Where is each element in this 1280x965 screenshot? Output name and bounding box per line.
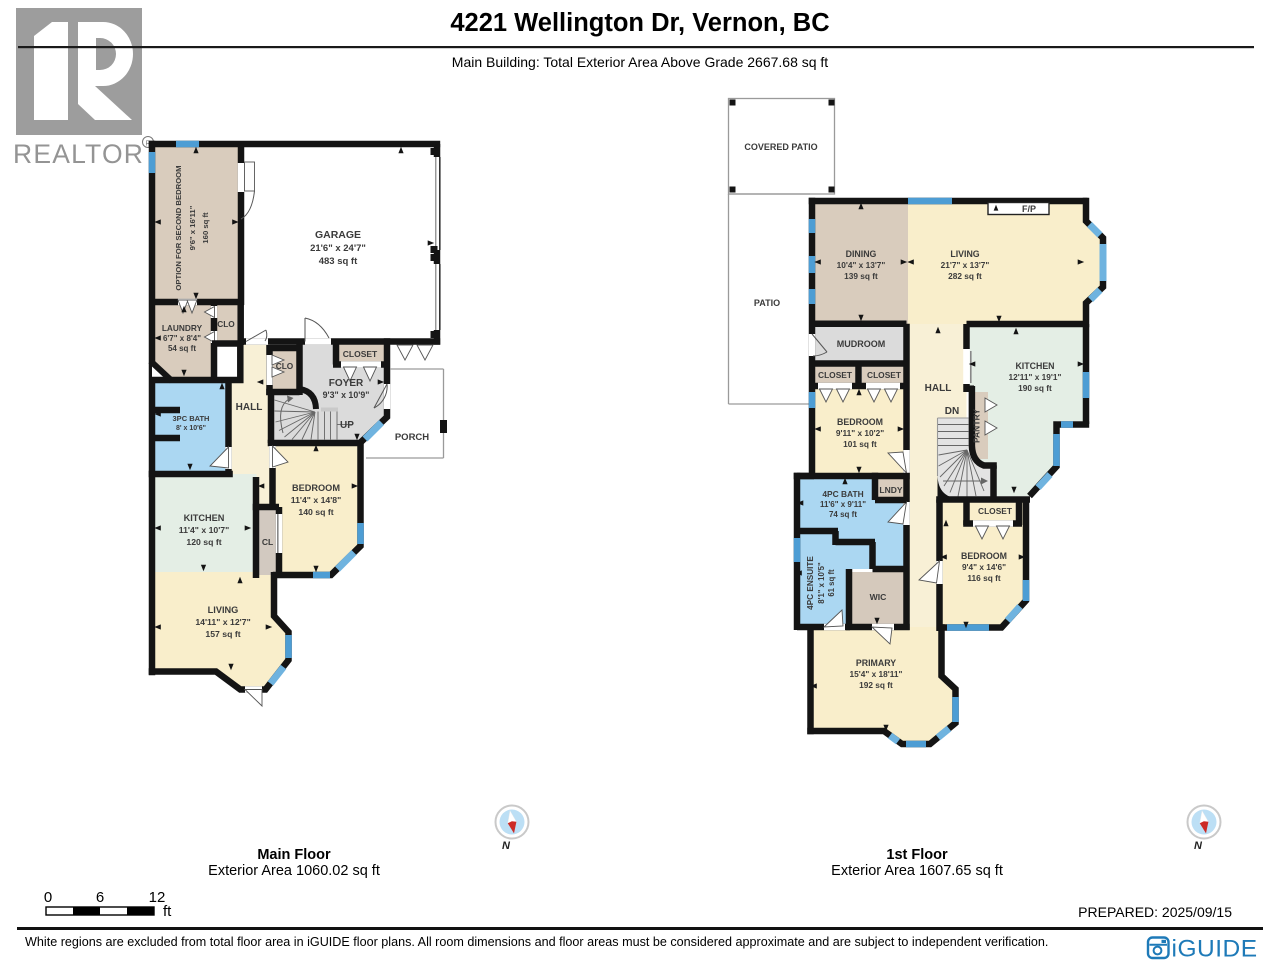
svg-text:LNDY: LNDY bbox=[879, 485, 902, 495]
svg-text:74 sq ft: 74 sq ft bbox=[829, 510, 857, 519]
svg-text:3PC BATH: 3PC BATH bbox=[173, 414, 210, 423]
svg-text:6'7" x 8'4": 6'7" x 8'4" bbox=[163, 334, 201, 343]
svg-text:iGUIDE: iGUIDE bbox=[1172, 936, 1258, 961]
svg-text:139 sq ft: 139 sq ft bbox=[844, 271, 878, 281]
svg-text:9'6" x 16'11": 9'6" x 16'11" bbox=[188, 205, 197, 250]
svg-text:9'3" x 10'9": 9'3" x 10'9" bbox=[323, 390, 370, 400]
svg-text:10'4" x 13'7": 10'4" x 13'7" bbox=[837, 260, 886, 270]
svg-text:0: 0 bbox=[44, 889, 52, 906]
svg-text:PREPARED: 2025/09/15: PREPARED: 2025/09/15 bbox=[1078, 904, 1232, 920]
svg-text:CLO: CLO bbox=[217, 319, 235, 329]
svg-text:6: 6 bbox=[96, 889, 104, 906]
svg-text:282 sq ft: 282 sq ft bbox=[948, 271, 982, 281]
svg-text:CLOSET: CLOSET bbox=[867, 370, 902, 380]
svg-text:HALL: HALL bbox=[925, 383, 952, 394]
svg-text:1st Floor: 1st Floor bbox=[886, 847, 948, 863]
svg-text:11'6" x 9'11": 11'6" x 9'11" bbox=[820, 500, 866, 509]
svg-text:Main Building: Total Exterior: Main Building: Total Exterior Area Above… bbox=[452, 54, 829, 70]
svg-text:21'7" x 13'7": 21'7" x 13'7" bbox=[941, 260, 990, 270]
svg-text:GARAGE: GARAGE bbox=[315, 229, 361, 241]
svg-text:WIC: WIC bbox=[870, 592, 887, 602]
svg-text:CLOSET: CLOSET bbox=[818, 370, 853, 380]
svg-text:OPTION FOR SECOND BEDROOM: OPTION FOR SECOND BEDROOM bbox=[174, 165, 183, 290]
svg-text:101 sq ft: 101 sq ft bbox=[843, 439, 877, 449]
svg-text:PRIMARY: PRIMARY bbox=[856, 658, 896, 668]
svg-text:BEDROOM: BEDROOM bbox=[961, 551, 1007, 561]
svg-text:REALTOR: REALTOR bbox=[13, 139, 144, 169]
svg-text:140 sq ft: 140 sq ft bbox=[298, 507, 333, 517]
svg-text:UP: UP bbox=[340, 420, 354, 431]
svg-text:PATIO: PATIO bbox=[754, 298, 780, 308]
svg-text:14'11" x 12'7": 14'11" x 12'7" bbox=[195, 617, 250, 627]
svg-text:MUDROOM: MUDROOM bbox=[837, 339, 886, 349]
svg-text:BEDROOM: BEDROOM bbox=[837, 417, 883, 427]
svg-text:N: N bbox=[1194, 840, 1203, 852]
svg-text:483 sq ft: 483 sq ft bbox=[319, 256, 358, 267]
svg-text:CLO: CLO bbox=[276, 361, 294, 371]
svg-text:F/P: F/P bbox=[1022, 204, 1036, 214]
svg-text:21'6" x 24'7": 21'6" x 24'7" bbox=[310, 243, 366, 254]
svg-text:9'4" x 14'6": 9'4" x 14'6" bbox=[962, 562, 1006, 572]
svg-text:Exterior Area 1607.65 sq ft: Exterior Area 1607.65 sq ft bbox=[831, 863, 1003, 879]
svg-text:CLOSET: CLOSET bbox=[343, 349, 378, 359]
svg-text:54 sq ft: 54 sq ft bbox=[168, 344, 196, 353]
svg-text:N: N bbox=[502, 840, 511, 852]
svg-text:Exterior Area 1060.02 sq ft: Exterior Area 1060.02 sq ft bbox=[208, 863, 380, 879]
svg-text:LIVING: LIVING bbox=[208, 605, 239, 615]
svg-text:61 sq ft: 61 sq ft bbox=[827, 569, 836, 597]
svg-text:9'11" x 10'2": 9'11" x 10'2" bbox=[836, 428, 884, 438]
svg-text:HALL: HALL bbox=[236, 402, 263, 413]
svg-text:4221 Wellington Dr, Vernon, BC: 4221 Wellington Dr, Vernon, BC bbox=[450, 9, 829, 37]
svg-text:PANTRY: PANTRY bbox=[972, 409, 982, 443]
svg-text:CL: CL bbox=[262, 537, 273, 547]
svg-text:4PC ENSUITE: 4PC ENSUITE bbox=[806, 556, 815, 610]
svg-text:Main Floor: Main Floor bbox=[257, 847, 331, 863]
svg-text:KITCHEN: KITCHEN bbox=[184, 513, 225, 523]
svg-text:CLOSET: CLOSET bbox=[978, 506, 1013, 516]
svg-text:190 sq ft: 190 sq ft bbox=[1018, 383, 1052, 393]
svg-text:120 sq ft: 120 sq ft bbox=[186, 537, 221, 547]
svg-text:192 sq ft: 192 sq ft bbox=[859, 680, 893, 690]
svg-text:4PC BATH: 4PC BATH bbox=[822, 489, 863, 499]
svg-text:11'4" x 14'8": 11'4" x 14'8" bbox=[291, 495, 342, 505]
svg-text:LAUNDRY: LAUNDRY bbox=[162, 323, 203, 333]
svg-text:KITCHEN: KITCHEN bbox=[1015, 361, 1054, 371]
svg-text:COVERED PATIO: COVERED PATIO bbox=[744, 142, 817, 152]
svg-text:PORCH: PORCH bbox=[395, 432, 429, 443]
svg-text:ft: ft bbox=[163, 903, 172, 920]
svg-text:DINING: DINING bbox=[846, 249, 877, 259]
svg-text:FOYER: FOYER bbox=[329, 378, 364, 389]
svg-text:15'4" x 18'11": 15'4" x 18'11" bbox=[850, 669, 903, 679]
svg-text:157 sq ft: 157 sq ft bbox=[205, 629, 240, 639]
svg-text:12'11" x 19'1": 12'11" x 19'1" bbox=[1009, 372, 1062, 382]
svg-text:11'4" x 10'7": 11'4" x 10'7" bbox=[179, 525, 230, 535]
svg-text:8'1" x 10'5": 8'1" x 10'5" bbox=[817, 562, 826, 604]
svg-text:White regions are excluded fro: White regions are excluded from total fl… bbox=[25, 935, 1048, 949]
svg-text:160 sq ft: 160 sq ft bbox=[201, 212, 210, 244]
svg-text:116 sq ft: 116 sq ft bbox=[967, 573, 1000, 583]
svg-text:LIVING: LIVING bbox=[950, 249, 979, 259]
svg-text:8' x 10'6": 8' x 10'6" bbox=[176, 425, 206, 432]
svg-text:DN: DN bbox=[945, 406, 959, 417]
svg-text:BEDROOM: BEDROOM bbox=[292, 483, 340, 493]
